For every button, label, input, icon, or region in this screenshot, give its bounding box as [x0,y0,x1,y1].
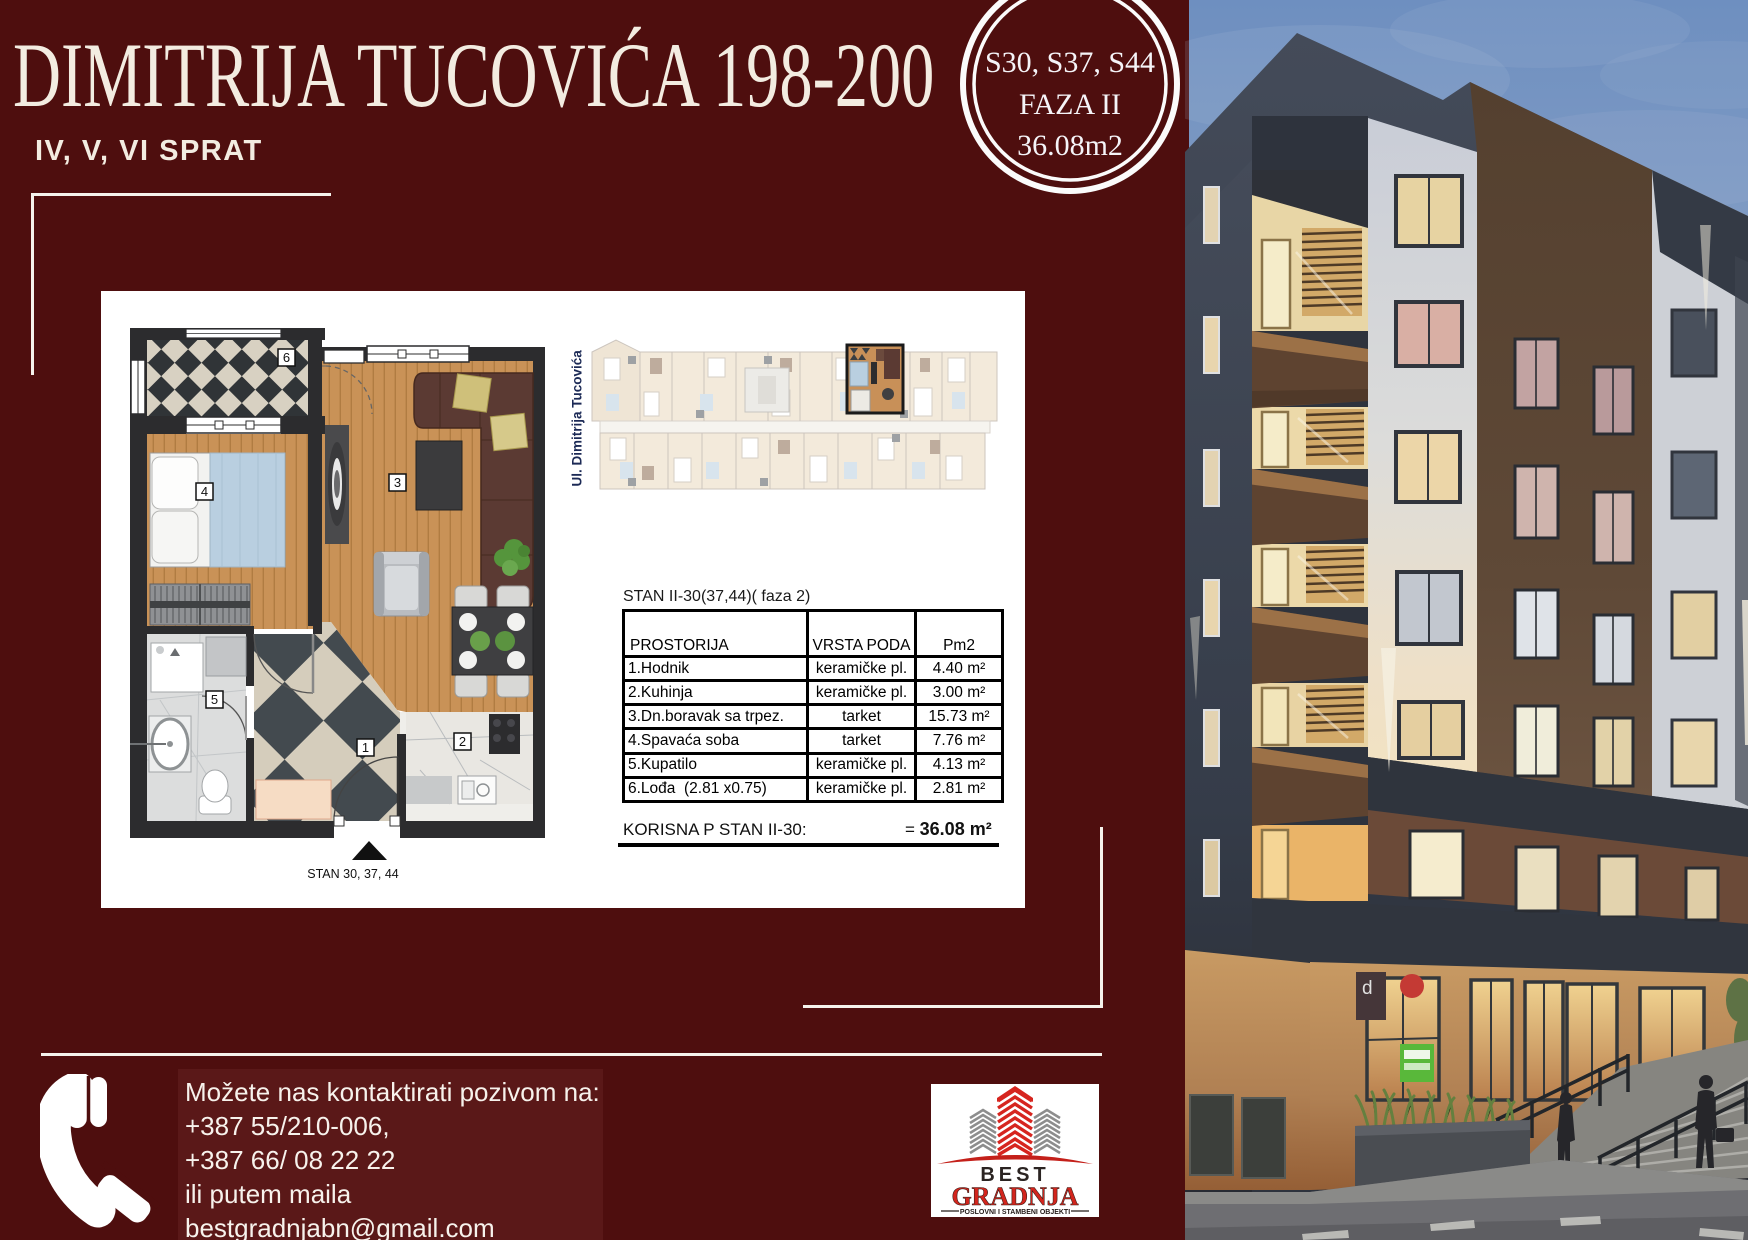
svg-text:6: 6 [283,350,290,365]
svg-text:GRADNJA: GRADNJA [951,1182,1078,1211]
svg-text:5: 5 [211,692,218,707]
svg-text:d: d [1362,978,1373,999]
svg-text:3: 3 [394,475,401,490]
svg-text:2: 2 [459,734,466,749]
svg-text:FAZA II: FAZA II [1019,88,1121,121]
svg-text:STAN 30, 37, 44: STAN 30, 37, 44 [307,867,399,881]
svg-text:4: 4 [201,484,208,499]
svg-text:1: 1 [362,740,369,755]
svg-text:36.08m2: 36.08m2 [1017,129,1123,162]
svg-text:POSLOVNI I STAMBENI OBJEKTI: POSLOVNI I STAMBENI OBJEKTI [960,1209,1070,1216]
svg-text:S30, S37, S44: S30, S37, S44 [985,46,1155,79]
